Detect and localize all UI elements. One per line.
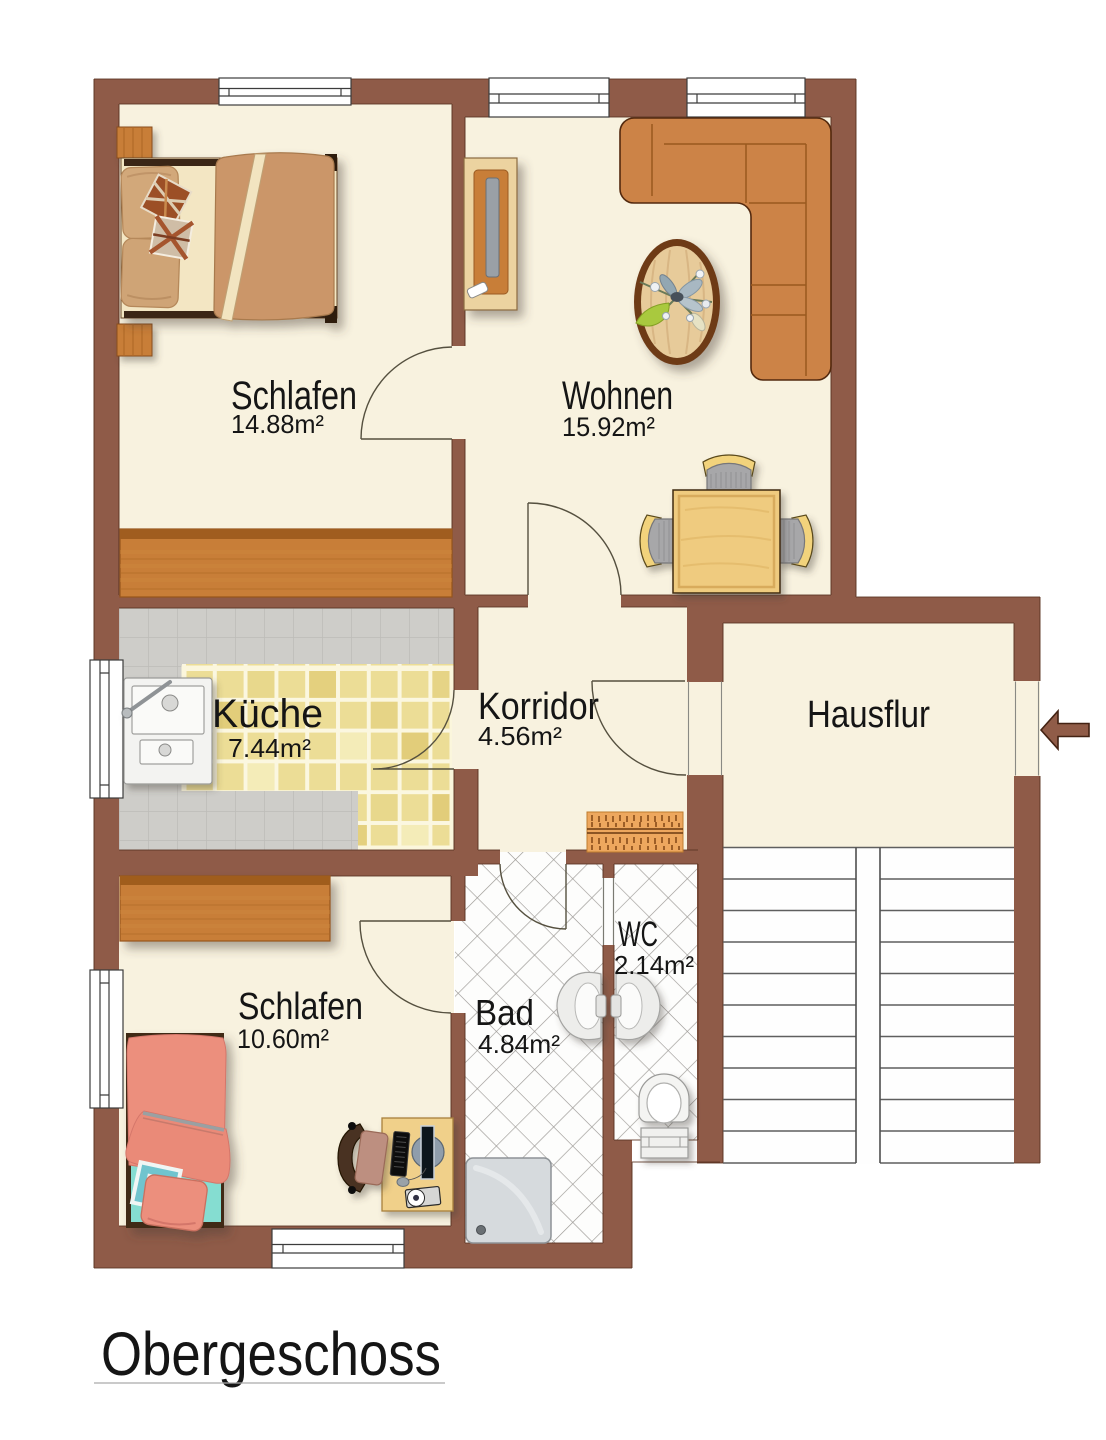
svg-text:Obergeschoss: Obergeschoss <box>101 1320 441 1388</box>
svg-text:10.60m²: 10.60m² <box>237 1024 329 1054</box>
svg-text:15.92m²: 15.92m² <box>562 412 655 442</box>
svg-text:4.84m²: 4.84m² <box>478 1029 560 1059</box>
svg-text:Bad: Bad <box>475 992 534 1033</box>
svg-text:7.44m²: 7.44m² <box>228 733 311 763</box>
svg-text:2.14m²: 2.14m² <box>614 950 694 980</box>
svg-text:Küche: Küche <box>212 692 323 736</box>
svg-text:14.88m²: 14.88m² <box>231 409 324 439</box>
svg-text:WC: WC <box>618 915 658 954</box>
svg-text:Hausflur: Hausflur <box>807 694 930 736</box>
svg-text:4.56m²: 4.56m² <box>478 721 562 751</box>
svg-text:Schlafen: Schlafen <box>238 986 363 1028</box>
